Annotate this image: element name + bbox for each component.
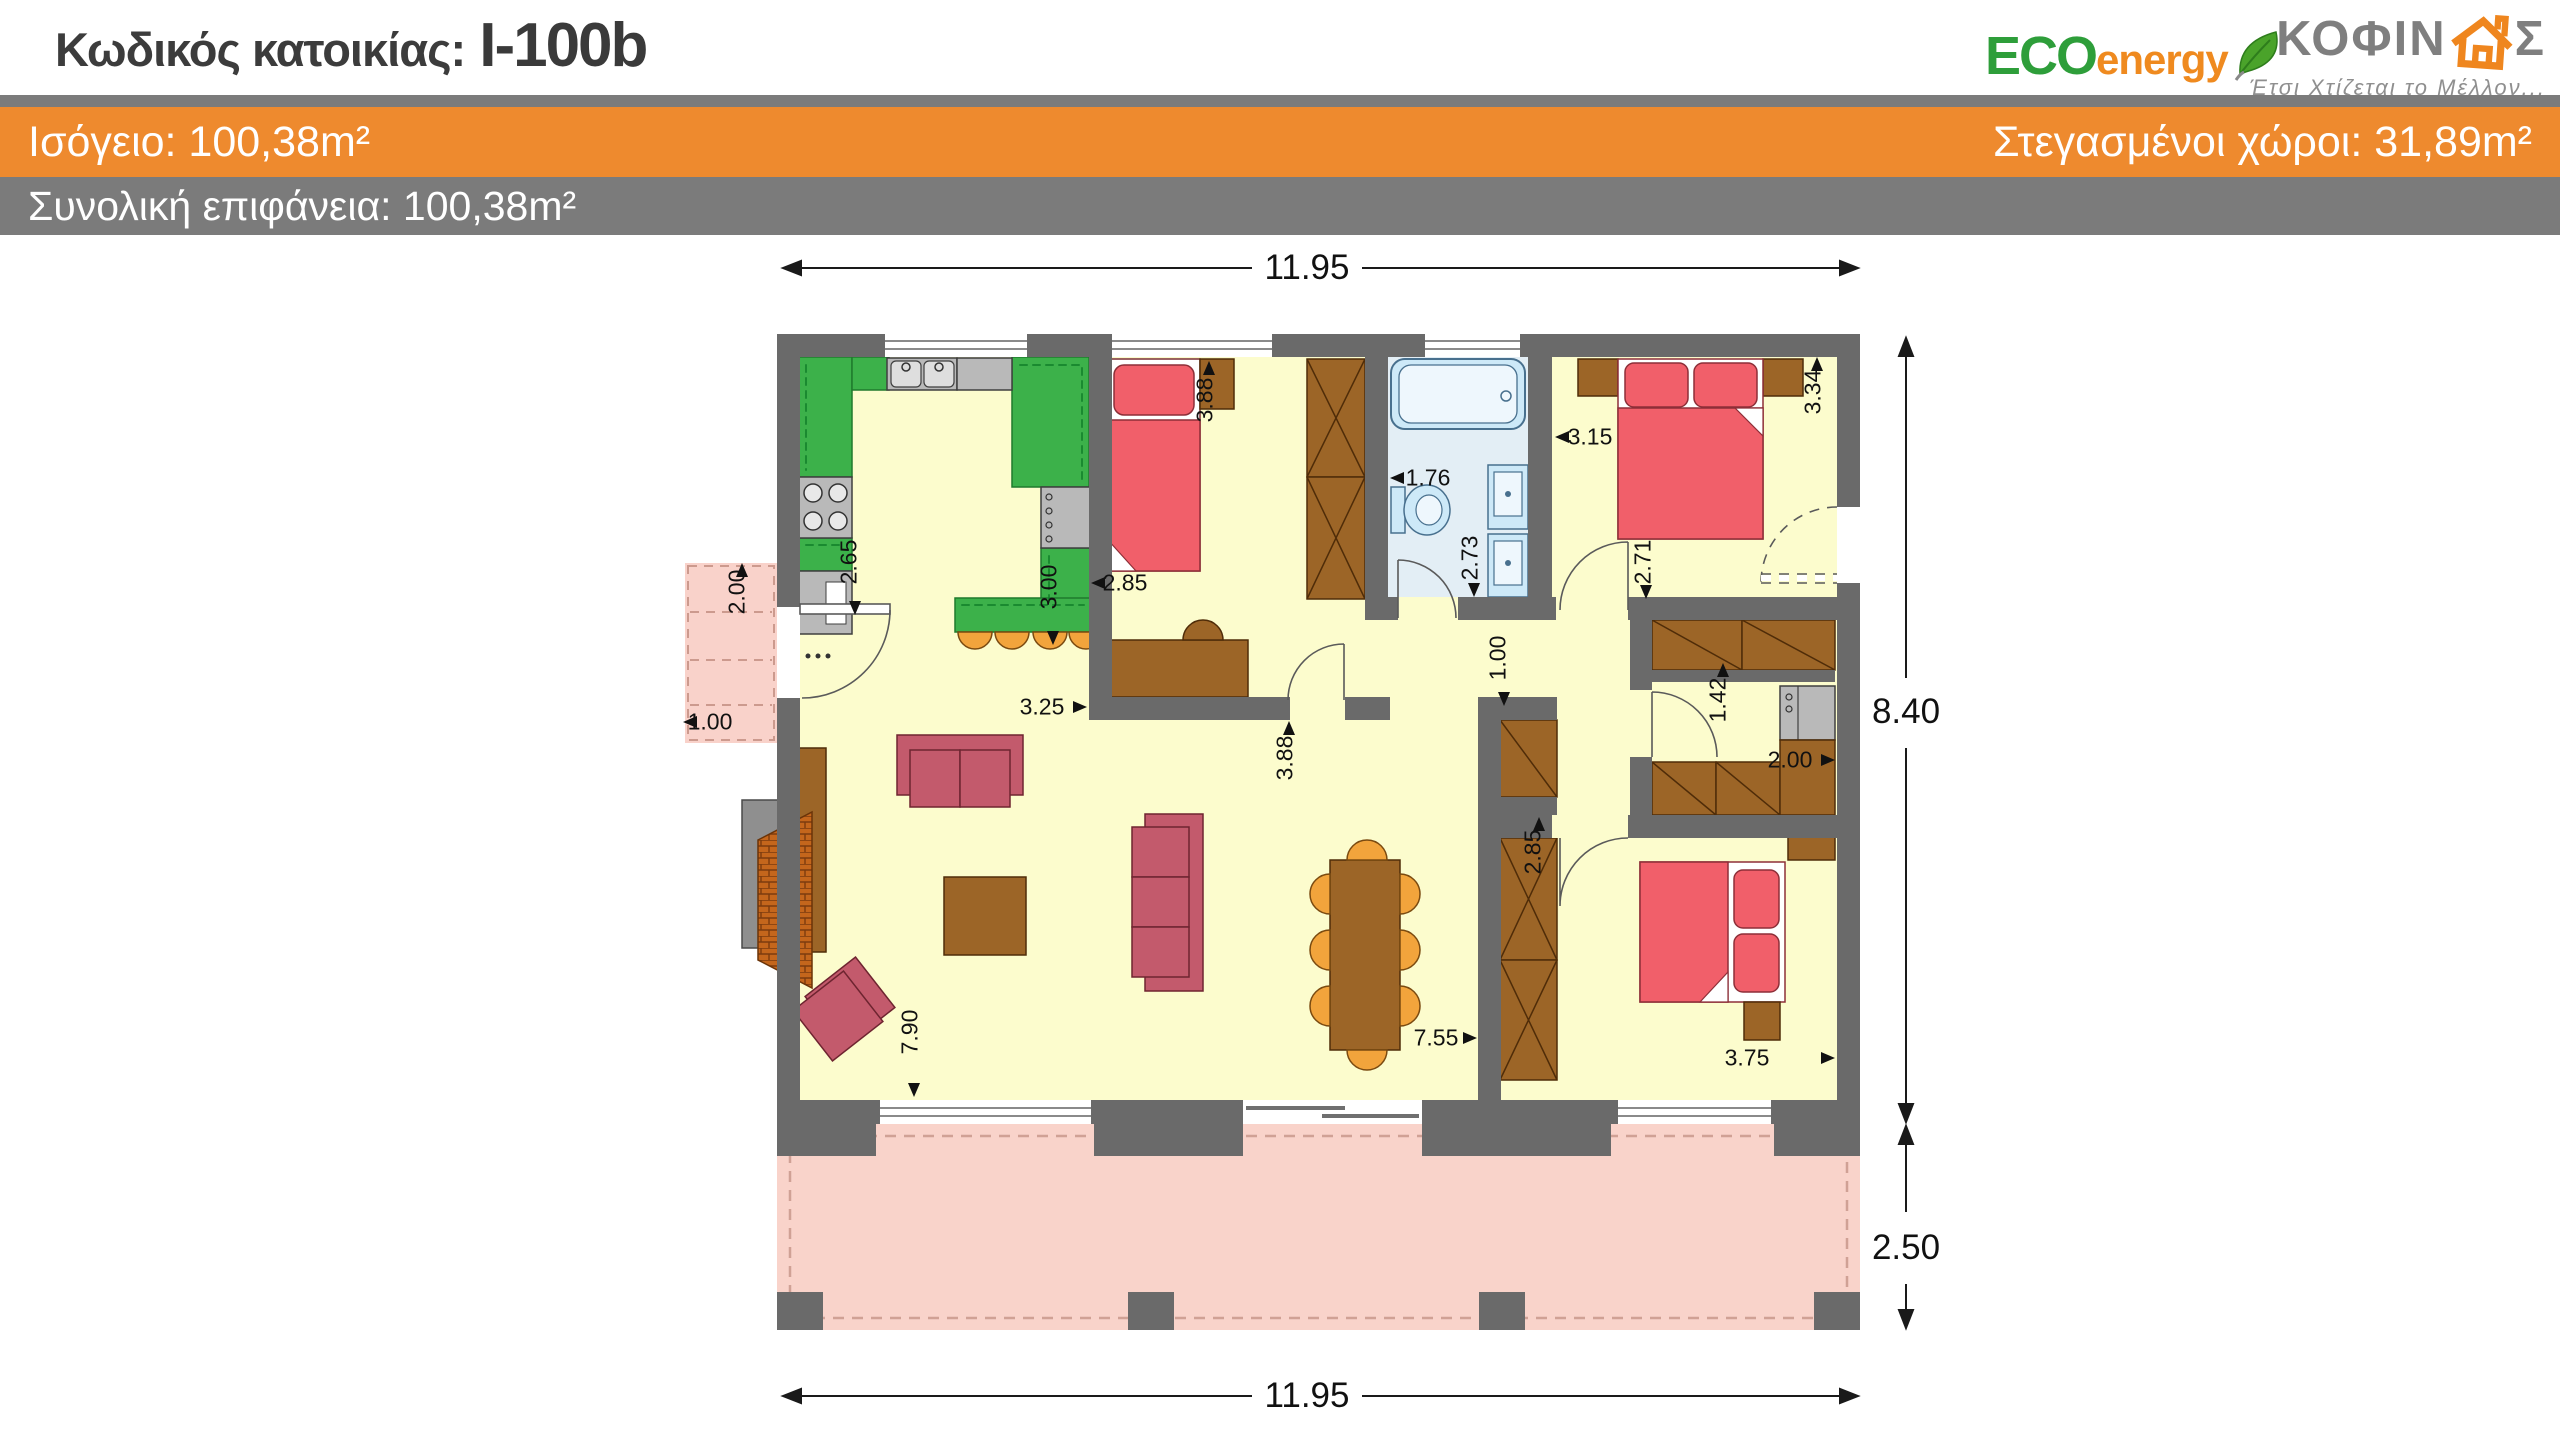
nightstand bbox=[1744, 1002, 1780, 1040]
terrace bbox=[777, 1124, 1860, 1330]
nightstand bbox=[1578, 359, 1618, 396]
desk bbox=[1106, 640, 1248, 697]
terrace-pillar bbox=[1479, 1292, 1525, 1330]
oven bbox=[1041, 487, 1091, 548]
nightstand bbox=[1763, 359, 1803, 396]
floor-plan-drawing bbox=[0, 0, 2560, 1437]
cabinet bbox=[1780, 740, 1835, 815]
sliding-door bbox=[1243, 1100, 1422, 1124]
terrace-pillar bbox=[1128, 1292, 1174, 1330]
toilet bbox=[1391, 487, 1405, 533]
dining-table bbox=[1330, 860, 1400, 1050]
entry-door-leaf bbox=[800, 604, 890, 614]
coffee-table bbox=[944, 877, 1026, 955]
floor-plan-sheet: Κωδικός κατοικίας: I-100b ECOenergy ΚΟΦΙ… bbox=[0, 0, 2560, 1437]
entry-porch bbox=[685, 563, 777, 743]
terrace-pillar bbox=[777, 1292, 823, 1330]
breakfast-bar bbox=[955, 598, 1091, 632]
nightstand bbox=[1200, 359, 1234, 409]
terrace-pillar bbox=[1814, 1292, 1860, 1330]
